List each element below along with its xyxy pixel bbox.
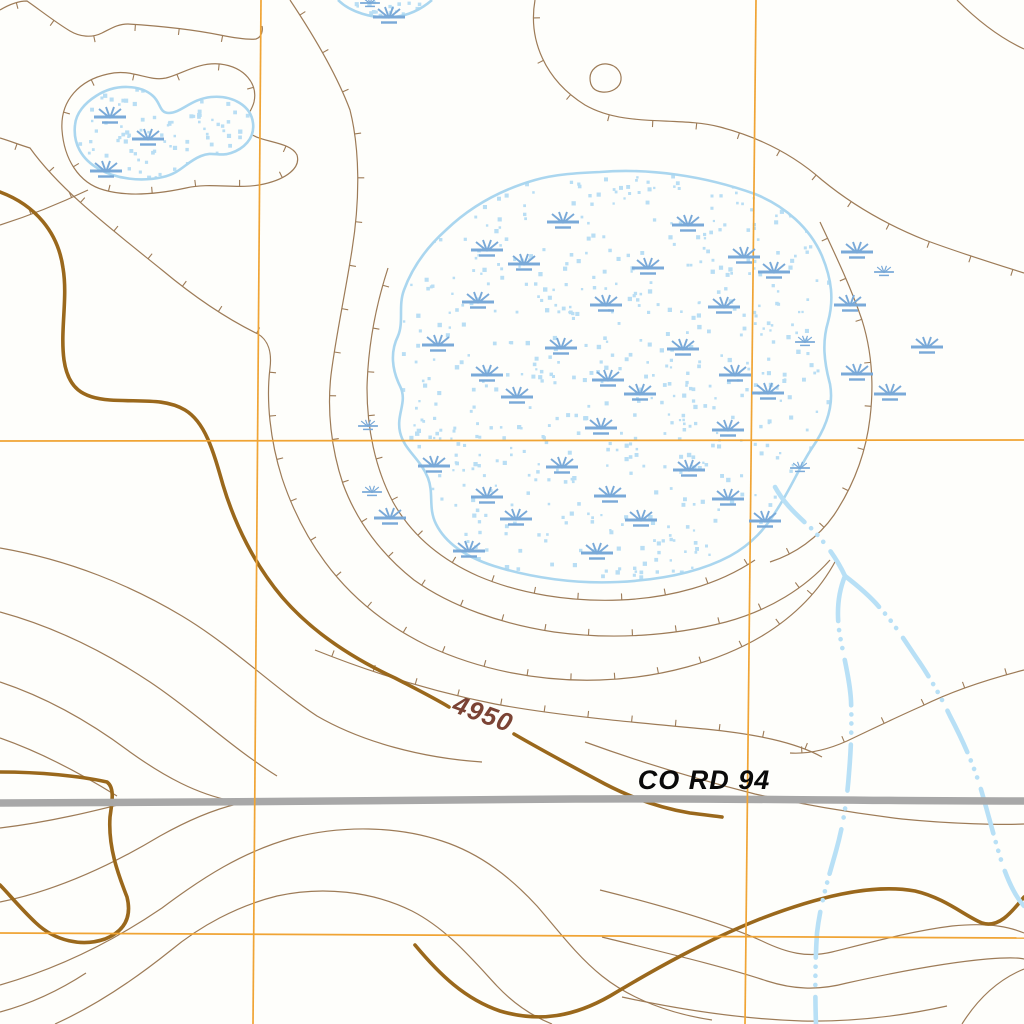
hachure-tick [270, 372, 276, 373]
hachure-tick [632, 716, 633, 722]
hachure-tick [865, 406, 871, 407]
hachure-tick [356, 222, 362, 223]
road-line [0, 799, 1024, 803]
hachure-tick [696, 123, 697, 129]
hachure-tick [218, 64, 219, 70]
hachure-tick [675, 720, 676, 726]
hachure-tick [270, 415, 276, 416]
hachure-tick [864, 362, 870, 363]
topo-map[interactable]: 4950 CO RD 94 [0, 0, 1024, 1024]
topo-map-canvas[interactable]: 4950 CO RD 94 [0, 0, 1024, 1024]
hachure-tick [152, 187, 153, 193]
hachure-tick [368, 415, 374, 416]
hachure-tick [719, 724, 720, 730]
road-centerline [0, 799, 1024, 803]
road-label: CO RD 94 [638, 765, 771, 795]
hachure-tick [588, 711, 589, 717]
grid-line-horizontal [0, 440, 1024, 441]
